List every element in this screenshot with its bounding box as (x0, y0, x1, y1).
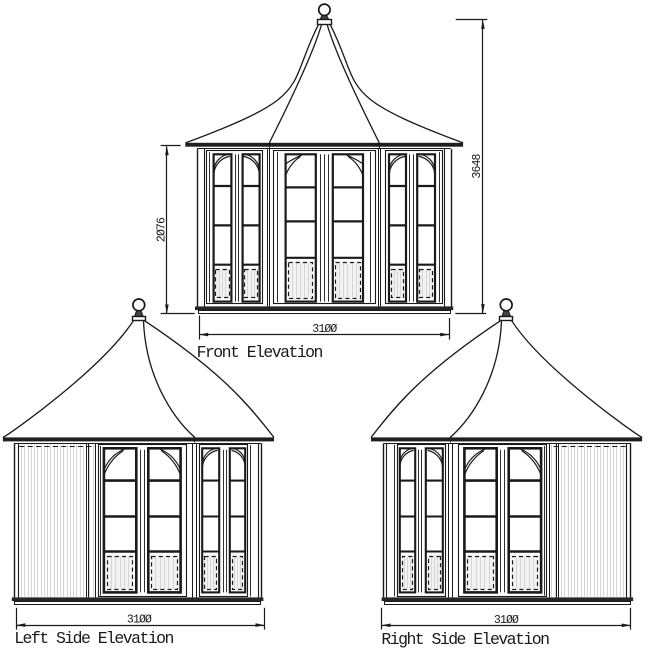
svg-text:3648: 3648 (471, 153, 484, 178)
svg-text:Right Side Elevation: Right Side Elevation (381, 630, 549, 649)
svg-text:31ØØ: 31ØØ (127, 614, 152, 627)
svg-text:31ØØ: 31ØØ (312, 323, 337, 336)
svg-text:Left Side Elevation: Left Side Elevation (14, 629, 173, 648)
svg-text:Front Elevation: Front Elevation (197, 343, 323, 362)
svg-text:31ØØ: 31ØØ (494, 614, 519, 627)
svg-text:2Ø76: 2Ø76 (155, 217, 168, 242)
